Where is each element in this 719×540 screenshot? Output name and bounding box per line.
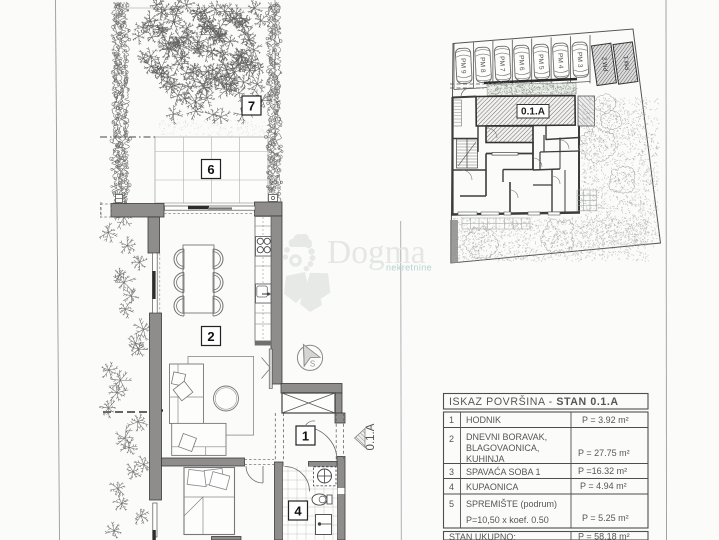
svg-text:5: 5	[449, 499, 454, 509]
svg-text:0.1.A: 0.1.A	[521, 107, 545, 118]
svg-text:P = 27.75 m²: P = 27.75 m²	[578, 448, 630, 458]
svg-text:PM 3: PM 3	[576, 52, 584, 68]
svg-text:4: 4	[294, 504, 302, 519]
svg-text:P =16.32 m²: P =16.32 m²	[578, 466, 627, 476]
svg-text:PM 7: PM 7	[498, 56, 506, 72]
svg-text:PM 8: PM 8	[478, 57, 486, 73]
svg-text:HODNIK: HODNIK	[466, 415, 501, 425]
svg-text:SPAVAĆA SOBA 1: SPAVAĆA SOBA 1	[466, 467, 541, 477]
svg-text:PM 6: PM 6	[517, 55, 525, 71]
svg-text:P = 3.92 m²: P = 3.92 m²	[582, 415, 629, 425]
svg-text:6: 6	[207, 162, 214, 177]
svg-text:DNEVNI BORAVAK,: DNEVNI BORAVAK,	[466, 432, 547, 442]
svg-text:STAN UKUPNO:: STAN UKUPNO:	[449, 532, 516, 540]
svg-text:KUPAONICA: KUPAONICA	[466, 482, 518, 492]
svg-text:S: S	[310, 360, 315, 369]
svg-text:4: 4	[449, 482, 454, 492]
svg-text:1: 1	[449, 415, 454, 425]
svg-text:PM 9: PM 9	[459, 58, 467, 74]
svg-text:3: 3	[449, 467, 454, 477]
svg-text:P = 5.25 m²: P = 5.25 m²	[582, 513, 629, 523]
svg-text:2: 2	[449, 434, 454, 444]
svg-text:P = 58.18 m²: P = 58.18 m²	[578, 532, 630, 540]
svg-text:BLAGOVAONICA,: BLAGOVAONICA,	[466, 443, 539, 453]
svg-text:0.1.A: 0.1.A	[365, 423, 377, 450]
svg-text:P = 4.94 m²: P = 4.94 m²	[580, 481, 627, 491]
svg-text:ISKAZ POVRŠINA - STAN 0.1.A: ISKAZ POVRŠINA - STAN 0.1.A	[449, 395, 619, 408]
svg-text:P=10,50 x koef. 0.50: P=10,50 x koef. 0.50	[466, 515, 549, 525]
svg-text:SPREMIŠTE (podrum): SPREMIŠTE (podrum)	[466, 499, 557, 509]
svg-text:2: 2	[207, 329, 214, 344]
svg-text:PM 4: PM 4	[556, 53, 564, 69]
svg-text:1: 1	[302, 429, 309, 444]
svg-text:nekretnine: nekretnine	[386, 263, 432, 273]
svg-text:KUHINJA: KUHINJA	[466, 454, 505, 464]
svg-text:7: 7	[248, 99, 255, 114]
svg-text:PM 5: PM 5	[537, 54, 545, 70]
